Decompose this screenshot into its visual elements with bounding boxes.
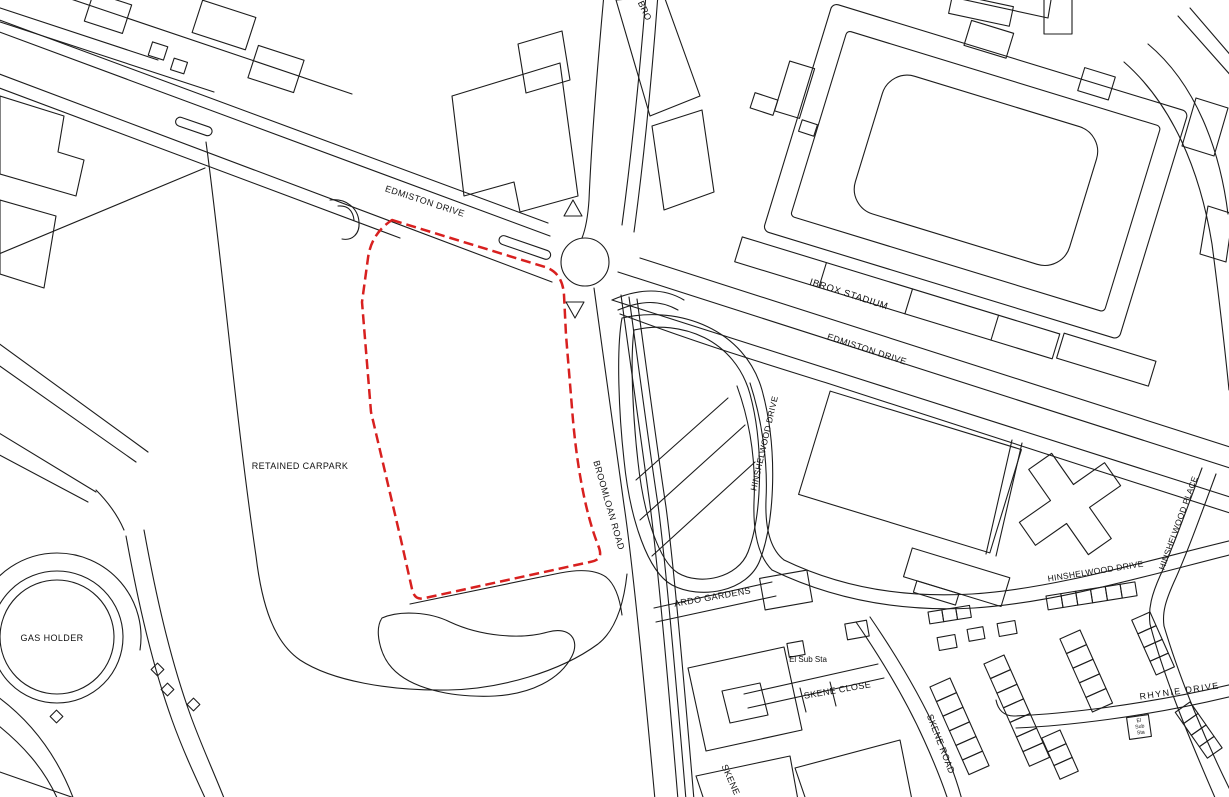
road-label-hinshelwood-drive-mid: HINSHELWOOD DRIVE [748,395,780,492]
gas-holder-area [0,430,224,797]
road-label-edmiston-drive-west: EDMISTON DRIVE [384,184,466,219]
road-label-hinshelwood-place: HINSHELWOOD PLACE [1157,475,1200,571]
label-ibrox-stadium: IBROX STADIUM [808,277,889,313]
road-label-rhynie-drive: RHYNIE DRIVE [1139,680,1220,701]
top-left-blocks [0,0,359,288]
roundabout [561,200,609,318]
edmiston-drive-west-road [0,18,552,282]
road-label-ardo-gardens: ARDO GARDENS [673,585,751,608]
label-retained-carpark: RETAINED CARPARK [252,461,349,471]
map-labels: EDMISTON DRIVE EDMISTON DRIVE IBROX STAD… [20,0,1220,797]
hinshelwood-place-road [1149,468,1229,797]
background-linework [0,0,1229,797]
road-label-edmiston-drive-east: EDMISTON DRIVE [826,332,908,367]
broomloan-road-south [594,288,694,797]
broomloan-road-north [582,0,658,238]
road-label-skene-close: SKENE CLOSE [803,679,872,701]
ardo-gardens-oval [612,291,773,592]
top-centre-buildings [452,0,817,212]
hinshelwood-drive-mid-road [737,383,1229,609]
map-drawing: EDMISTON DRIVE EDMISTON DRIVE IBROX STAD… [0,0,1229,797]
ardo-gardens-street [654,582,776,622]
retained-carpark-boundary [0,142,627,690]
right-middle-blocks [760,391,1143,618]
site-location-plan: EDMISTON DRIVE EDMISTON DRIVE IBROX STAD… [0,0,1229,797]
ibrox-stadium-outline [729,0,1229,388]
housing-terraces [928,582,1222,779]
top-right-blocks [938,0,1229,390]
site-boundary [362,220,600,599]
label-el-sub-sta: El Sub Sta [789,655,827,664]
road-label-skene-road: SKENE ROAD [925,713,957,776]
road-label-broomloan-road: BROOMLOAN ROAD [591,459,626,551]
label-gas-holder: GAS HOLDER [20,633,83,643]
label-el-sub-sta-small-line3: Sta [1137,729,1146,736]
edmiston-drive-east-road [612,258,1229,514]
road-label-broomloan-road-partial: BRO [636,0,654,22]
road-label-hinshelwood-drive-east: HINSHELWOOD DRIVE [1047,559,1144,584]
embankment-outline [378,613,574,696]
road-label-skene-road-partial: SKENE [720,763,742,797]
